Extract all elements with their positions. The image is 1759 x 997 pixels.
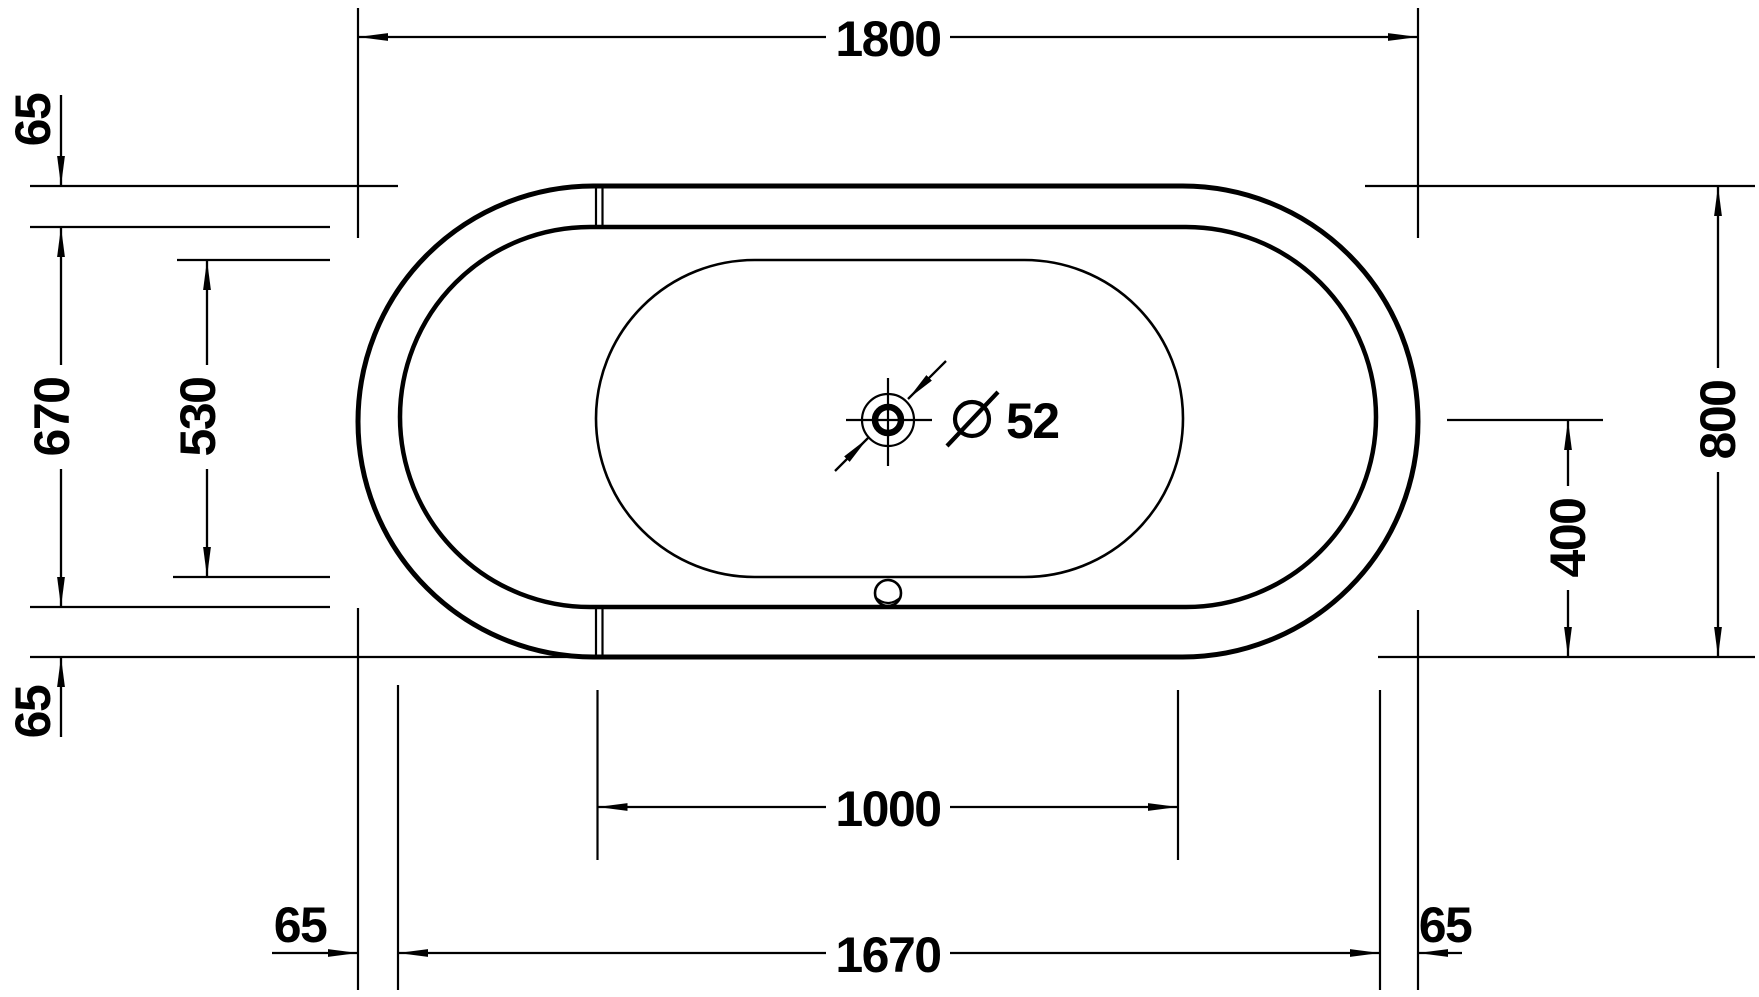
dim-foot-length-label: 1670 <box>835 927 940 983</box>
drain-leader-upper <box>908 361 946 399</box>
drain-diameter-label: 52 <box>1006 393 1059 449</box>
basin-outline <box>596 260 1183 577</box>
dim-overall-length-label: 1800 <box>835 11 940 67</box>
dim-overall-width-label: 800 <box>1690 381 1746 460</box>
diameter-callout: 52 <box>947 392 1059 449</box>
extension-lines <box>30 8 1755 990</box>
dim-drain-offset-label: 400 <box>1540 499 1596 578</box>
dim-foot-clearance-right-label: 65 <box>1419 897 1472 953</box>
dim-straight-section-label: 1000 <box>835 781 940 837</box>
dim-basin-width-label: 530 <box>170 378 226 457</box>
dim-rim-offset-bottom-label: 65 <box>5 685 61 738</box>
drawing-canvas: 52 1800 65 670 530 65 800 400 1000 65 <box>0 0 1759 997</box>
dim-rim-offset-top-label: 65 <box>5 93 61 146</box>
bathtub-technical-drawing: 52 1800 65 670 530 65 800 400 1000 65 <box>0 0 1759 997</box>
dimension-labels: 1800 65 670 530 65 800 400 1000 65 1670 … <box>5 11 1746 983</box>
dim-inner-rim-width-label: 670 <box>24 378 80 457</box>
drain-group <box>835 361 946 606</box>
drain-leader-lower <box>835 438 868 471</box>
dim-foot-clearance-left-label: 65 <box>274 897 327 953</box>
